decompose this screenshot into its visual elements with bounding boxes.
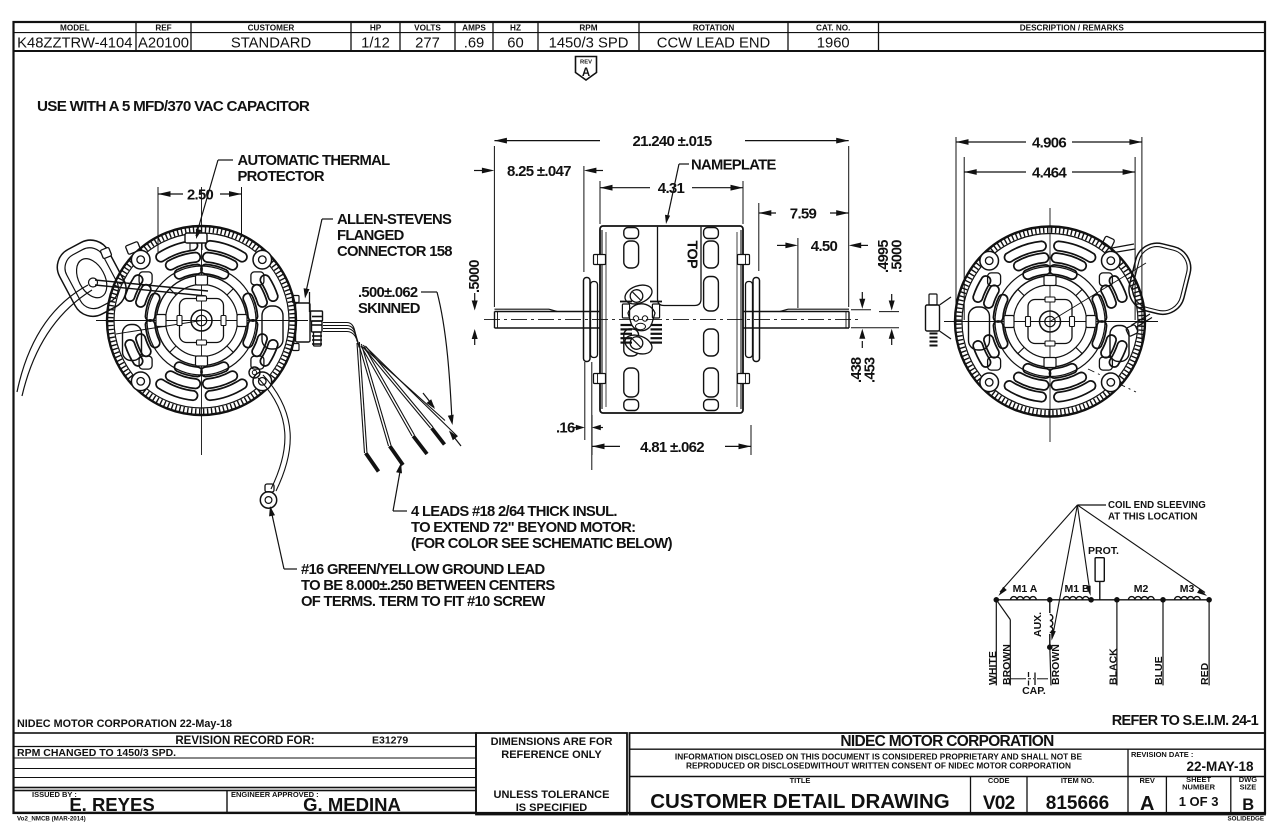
svg-text:.16: .16 — [556, 421, 575, 437]
svg-text:A: A — [1140, 793, 1154, 815]
svg-text:22-MAY-18: 22-MAY-18 — [1186, 759, 1254, 774]
svg-text:A20100: A20100 — [138, 35, 189, 51]
svg-text:MODEL: MODEL — [60, 23, 90, 32]
svg-text:NIDEC MOTOR CORPORATION 22-May: NIDEC MOTOR CORPORATION 22-May-18 — [17, 718, 232, 730]
svg-text:M1 A: M1 A — [1013, 583, 1038, 595]
svg-text:PROTECTOR: PROTECTOR — [238, 169, 325, 185]
svg-text:BLACK: BLACK — [1108, 648, 1120, 685]
svg-text:CCW LEAD END: CCW LEAD END — [657, 35, 770, 51]
svg-text:REVISION DATE :: REVISION DATE : — [1131, 750, 1193, 759]
svg-text:REV: REV — [580, 60, 592, 66]
svg-text:WHITE: WHITE — [987, 651, 999, 685]
svg-text:M3: M3 — [1180, 583, 1195, 595]
svg-text:1450/3 SPD: 1450/3 SPD — [549, 35, 629, 51]
svg-text:CONNECTOR 158: CONNECTOR 158 — [337, 244, 452, 260]
svg-text:DESCRIPTION / REMARKS: DESCRIPTION / REMARKS — [1020, 23, 1125, 32]
svg-text:SIZE: SIZE — [1240, 783, 1257, 792]
svg-text:AT THIS LOCATION: AT THIS LOCATION — [1108, 512, 1198, 523]
svg-text:TITLE: TITLE — [790, 776, 811, 785]
svg-text:NAMEPLATE: NAMEPLATE — [691, 158, 777, 174]
svg-text:(FOR COLOR SEE SCHEMATIC BELOW: (FOR COLOR SEE SCHEMATIC BELOW) — [411, 536, 673, 552]
svg-text:FLANGED: FLANGED — [337, 228, 405, 244]
svg-text:ROTATION: ROTATION — [693, 23, 735, 32]
svg-text:4.50: 4.50 — [811, 238, 838, 255]
svg-text:AUX.: AUX. — [1032, 612, 1044, 637]
svg-text:M2: M2 — [1134, 583, 1149, 595]
svg-text:4.81 ±.062: 4.81 ±.062 — [640, 439, 704, 456]
svg-text:AUTOMATIC THERMAL: AUTOMATIC THERMAL — [238, 153, 391, 169]
svg-text:ALLEN-STEVENS: ALLEN-STEVENS — [337, 212, 452, 228]
svg-text:TO EXTEND 72" BEYOND MOTOR:: TO EXTEND 72" BEYOND MOTOR: — [411, 520, 635, 536]
svg-text:8.25 ±.047: 8.25 ±.047 — [507, 163, 571, 180]
svg-text:REV: REV — [1139, 776, 1154, 785]
svg-text:SOLIDEDGE: SOLIDEDGE — [1228, 816, 1264, 823]
svg-text:VOLTS: VOLTS — [414, 23, 441, 32]
svg-text:USE WITH A 5 MFD/370 VAC CAPAC: USE WITH A 5 MFD/370 VAC CAPACITOR — [37, 98, 310, 115]
svg-text:1 OF 3: 1 OF 3 — [1179, 794, 1219, 809]
svg-text:CAT. NO.: CAT. NO. — [816, 23, 850, 32]
svg-text:CAP.: CAP. — [1022, 685, 1046, 697]
svg-text:7.59: 7.59 — [790, 206, 817, 223]
svg-text:HZ: HZ — [510, 23, 521, 32]
svg-text:21.240 ±.015: 21.240 ±.015 — [632, 133, 711, 150]
svg-text:815666: 815666 — [1046, 793, 1109, 814]
svg-text:RED: RED — [1199, 662, 1211, 685]
svg-text:CUSTOMER: CUSTOMER — [248, 23, 295, 32]
svg-text:E31279: E31279 — [372, 735, 408, 747]
svg-text:AMPS: AMPS — [462, 23, 486, 32]
svg-text:4.31: 4.31 — [658, 180, 685, 197]
svg-text:BROWN: BROWN — [1050, 644, 1062, 685]
svg-text:REFER TO S.E.I.M. 24-1: REFER TO S.E.I.M. 24-1 — [1112, 713, 1259, 729]
svg-text:CUSTOMER DETAIL DRAWING: CUSTOMER DETAIL DRAWING — [650, 790, 950, 813]
svg-text:HP: HP — [370, 23, 382, 32]
svg-text:COIL END SLEEVING: COIL END SLEEVING — [1108, 500, 1206, 511]
svg-text:NUMBER: NUMBER — [1182, 783, 1215, 792]
svg-text:G. MEDINA: G. MEDINA — [303, 794, 401, 815]
svg-text:TO BE 8.000±.250 BETWEEN CENT: TO BE 8.000±.250 BETWEEN CENTERS — [301, 578, 555, 594]
svg-text:PROT.: PROT. — [1088, 545, 1119, 557]
svg-text:.5000: .5000 — [890, 240, 906, 273]
svg-text:A: A — [582, 67, 590, 79]
svg-text:UNLESS TOLERANCE: UNLESS TOLERANCE — [494, 789, 610, 801]
svg-text:E. REYES: E. REYES — [69, 794, 154, 815]
svg-text:STANDARD: STANDARD — [231, 35, 311, 51]
svg-text:1960: 1960 — [817, 35, 850, 51]
svg-text:4.906: 4.906 — [1032, 135, 1066, 152]
svg-text:K48ZZTRW-4104: K48ZZTRW-4104 — [17, 35, 132, 51]
svg-text:REVISION RECORD FOR:: REVISION RECORD FOR: — [175, 735, 314, 747]
svg-text:.500±.062: .500±.062 — [358, 285, 418, 301]
svg-text:RPM CHANGED TO 1450/3 SPD.: RPM CHANGED TO 1450/3 SPD. — [17, 747, 176, 759]
svg-text:4 LEADS #18 2/64 THICK INSUL.: 4 LEADS #18 2/64 THICK INSUL. — [411, 504, 617, 520]
svg-text:4.464: 4.464 — [1032, 165, 1067, 182]
svg-text:REF: REF — [155, 23, 171, 32]
svg-text:OF TERMS. TERM TO FIT #10 SCRE: OF TERMS. TERM TO FIT #10 SCREW — [301, 594, 545, 610]
svg-text:60: 60 — [507, 35, 523, 51]
svg-text:REFERENCE ONLY: REFERENCE ONLY — [501, 749, 602, 761]
svg-text:CODE: CODE — [988, 776, 1010, 785]
svg-text:SKINNED: SKINNED — [358, 301, 421, 317]
svg-text:V02: V02 — [983, 793, 1015, 814]
svg-text:Vo2_NMCB (MAR-2014): Vo2_NMCB (MAR-2014) — [17, 816, 86, 823]
svg-text:RPM: RPM — [579, 23, 597, 32]
svg-text:277: 277 — [415, 35, 440, 51]
svg-text:NIDEC MOTOR CORPORATION: NIDEC MOTOR CORPORATION — [840, 733, 1054, 750]
svg-text:BLUE: BLUE — [1153, 656, 1165, 685]
svg-text:.5000: .5000 — [467, 260, 483, 293]
svg-text:REPRODUCED OR DISCLOSEDWITHOUT: REPRODUCED OR DISCLOSEDWITHOUT WRITTEN C… — [686, 761, 1071, 771]
svg-text:#16 GREEN/YELLOW GROUND LEAD: #16 GREEN/YELLOW GROUND LEAD — [301, 562, 545, 578]
svg-text:IS SPECIFIED: IS SPECIFIED — [516, 802, 588, 814]
svg-text:.69: .69 — [464, 35, 485, 51]
svg-text:DIMENSIONS ARE FOR: DIMENSIONS ARE FOR — [491, 736, 613, 748]
svg-text:M1 B: M1 B — [1064, 583, 1090, 595]
svg-text:2.50: 2.50 — [187, 188, 213, 204]
svg-text:B: B — [1242, 796, 1254, 814]
svg-text:1/12: 1/12 — [361, 35, 390, 51]
svg-text:.453: .453 — [863, 357, 879, 383]
svg-text:TOP: TOP — [684, 241, 700, 269]
svg-text:ITEM NO.: ITEM NO. — [1061, 776, 1094, 785]
